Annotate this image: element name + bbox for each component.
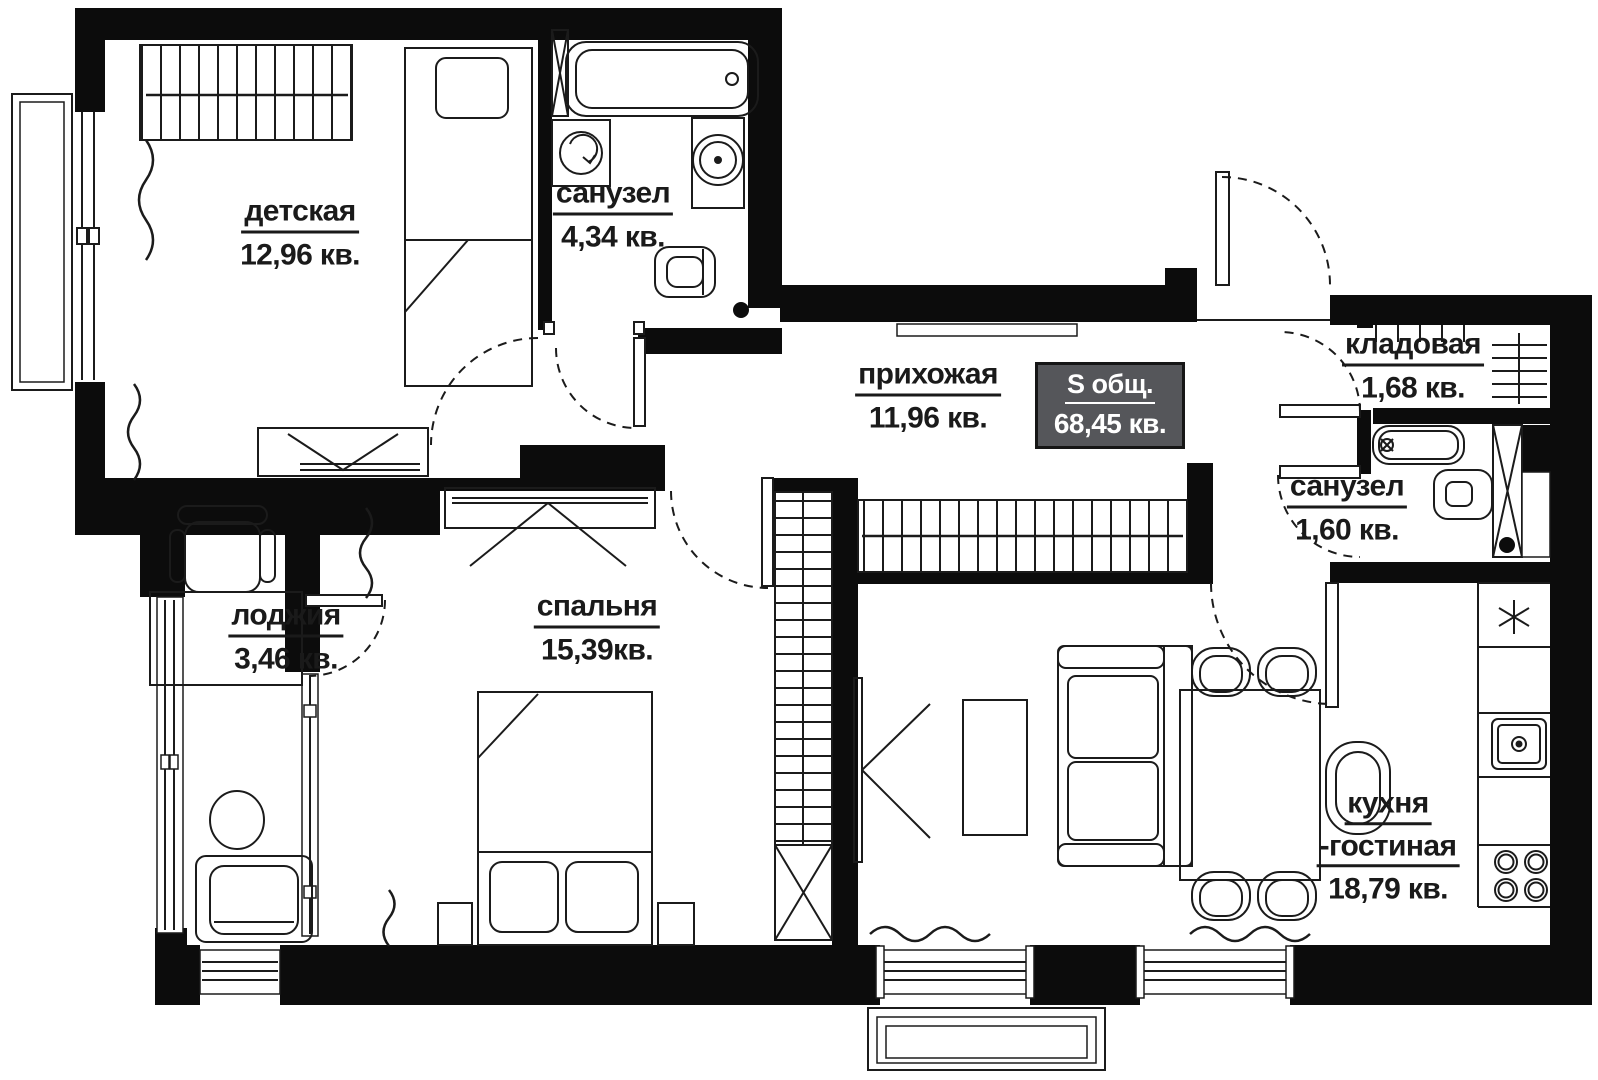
room-label-kitchen-living: кухня -гостиная 18,79 кв. (1317, 787, 1460, 905)
total-area-label: S общ. (1065, 369, 1155, 404)
shelving-unit-icon (775, 492, 832, 845)
toilet-icon (655, 247, 715, 297)
room-label-storage: кладовая 1,68 кв. (1342, 329, 1484, 404)
bathtub-icon (566, 42, 758, 116)
room-label-kids-room: детская 12,96 кв. (240, 196, 360, 271)
living-room-door-swing-icon (1211, 583, 1338, 707)
total-area-badge: S общ. 68,45 кв. (1035, 362, 1185, 449)
window-loggia-bottom (200, 950, 280, 994)
room-area: 4,34 кв. (553, 221, 673, 253)
sofa-icon (1058, 646, 1192, 866)
room-area: 3,46 кв. (228, 643, 343, 675)
room-name: кухня (1344, 787, 1431, 825)
curtain-squiggle-icon (384, 890, 395, 946)
total-area-value: 68,45 кв. (1038, 408, 1182, 440)
floor-drain-icon (733, 302, 749, 318)
hallway-closet-icon (858, 500, 1187, 572)
entry-door-swing-icon (1197, 172, 1330, 320)
room-name: спальня (534, 591, 660, 629)
room-area: 11,96 кв. (855, 402, 1001, 434)
curtain-squiggle-icon (128, 384, 140, 480)
round-table-icon (210, 791, 264, 849)
floor-plan: детская 12,96 кв. санузел 4,34 кв. прихо… (0, 0, 1598, 1080)
storage-shelves-icon (1492, 333, 1547, 404)
small-bathtub-icon (1373, 426, 1464, 464)
bedroom-door-swing-icon (671, 478, 773, 588)
closet-icon (445, 488, 655, 566)
room-area: 1,68 кв. (1342, 372, 1484, 404)
room-area: 12,96 кв. (240, 239, 360, 271)
double-bed-icon (438, 692, 694, 945)
window-kitchen-1 (876, 946, 1034, 998)
window-kitchen-2 (1136, 946, 1294, 998)
room-name: санузел (553, 178, 673, 216)
balcony-outline (868, 1008, 1105, 1070)
dining-table-icon (1180, 690, 1320, 880)
room-area: 15,39кв. (534, 634, 660, 666)
room-name: детская (241, 196, 358, 234)
vent-shaft-icon (775, 845, 832, 940)
window-detskaya-balcony-frame (12, 94, 72, 390)
duct-box (1522, 472, 1550, 557)
curtain-squiggle-icon (870, 927, 990, 941)
curtain-squiggle-icon (139, 140, 153, 260)
window-detskaya-left (77, 112, 99, 380)
dining-chair-icon (1192, 648, 1250, 696)
window-loggia-left (157, 597, 183, 933)
kitchen-sink-icon (1492, 719, 1546, 769)
room-name: прихожая (855, 359, 1001, 397)
room-label-bedroom: спальня 15,39кв. (534, 591, 660, 666)
room-label-small-bathroom: санузел 1,60 кв. (1287, 471, 1407, 546)
room-name: кладовая (1342, 329, 1484, 367)
room-label-loggia: лоджия 3,46 кв. (228, 600, 343, 675)
sink-icon (692, 118, 744, 208)
bathroom-door-swing-icon (544, 322, 645, 428)
wardrobe-icon (140, 45, 352, 140)
dining-chair-icon (1258, 648, 1316, 696)
kids-room-door-swing-icon (431, 338, 538, 445)
armchair-icon (196, 856, 312, 942)
dresser-icon (258, 428, 428, 476)
room-name: санузел (1287, 471, 1407, 509)
floor-drain-icon (1499, 537, 1515, 553)
room-label-bathroom: санузел 4,34 кв. (553, 178, 673, 253)
toilet-icon (1434, 470, 1492, 519)
window-bedroom-loggia-partition (302, 674, 318, 936)
room-area: 18,79 кв. (1317, 873, 1460, 905)
room-area: 1,60 кв. (1287, 514, 1407, 546)
tv-icon (854, 678, 930, 862)
kids-bed-icon (405, 48, 532, 386)
coffee-table-icon (963, 700, 1027, 835)
hallway-niche (897, 324, 1077, 336)
room-name-2: -гостиная (1317, 830, 1460, 868)
stove-icon (1495, 851, 1547, 901)
room-name: лоджия (228, 600, 343, 638)
curtain-squiggle-icon (1190, 927, 1310, 941)
fridge-asterisk-icon (1499, 600, 1529, 634)
room-label-hallway: прихожая 11,96 кв. (855, 359, 1001, 434)
